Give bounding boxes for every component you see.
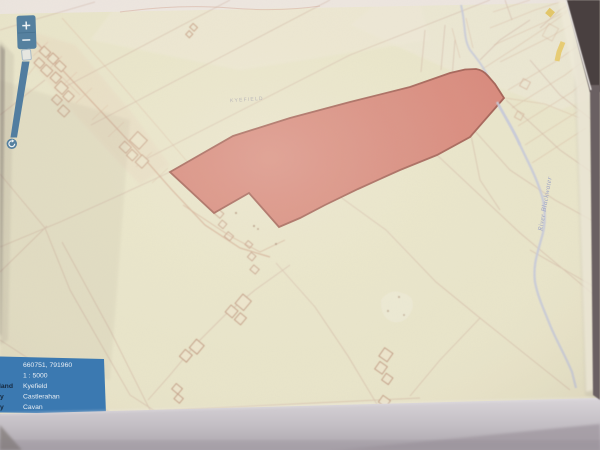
svg-text:land: land xyxy=(0,383,13,390)
svg-text:Cavan: Cavan xyxy=(23,404,43,411)
svg-text:Kyefield: Kyefield xyxy=(23,383,47,390)
svg-text:660751, 791960: 660751, 791960 xyxy=(23,362,72,369)
svg-text:y: y xyxy=(0,394,4,401)
svg-text:1 : 5000: 1 : 5000 xyxy=(23,373,48,380)
svg-text:y: y xyxy=(0,404,4,411)
svg-text:Castlerahan: Castlerahan xyxy=(23,394,60,401)
